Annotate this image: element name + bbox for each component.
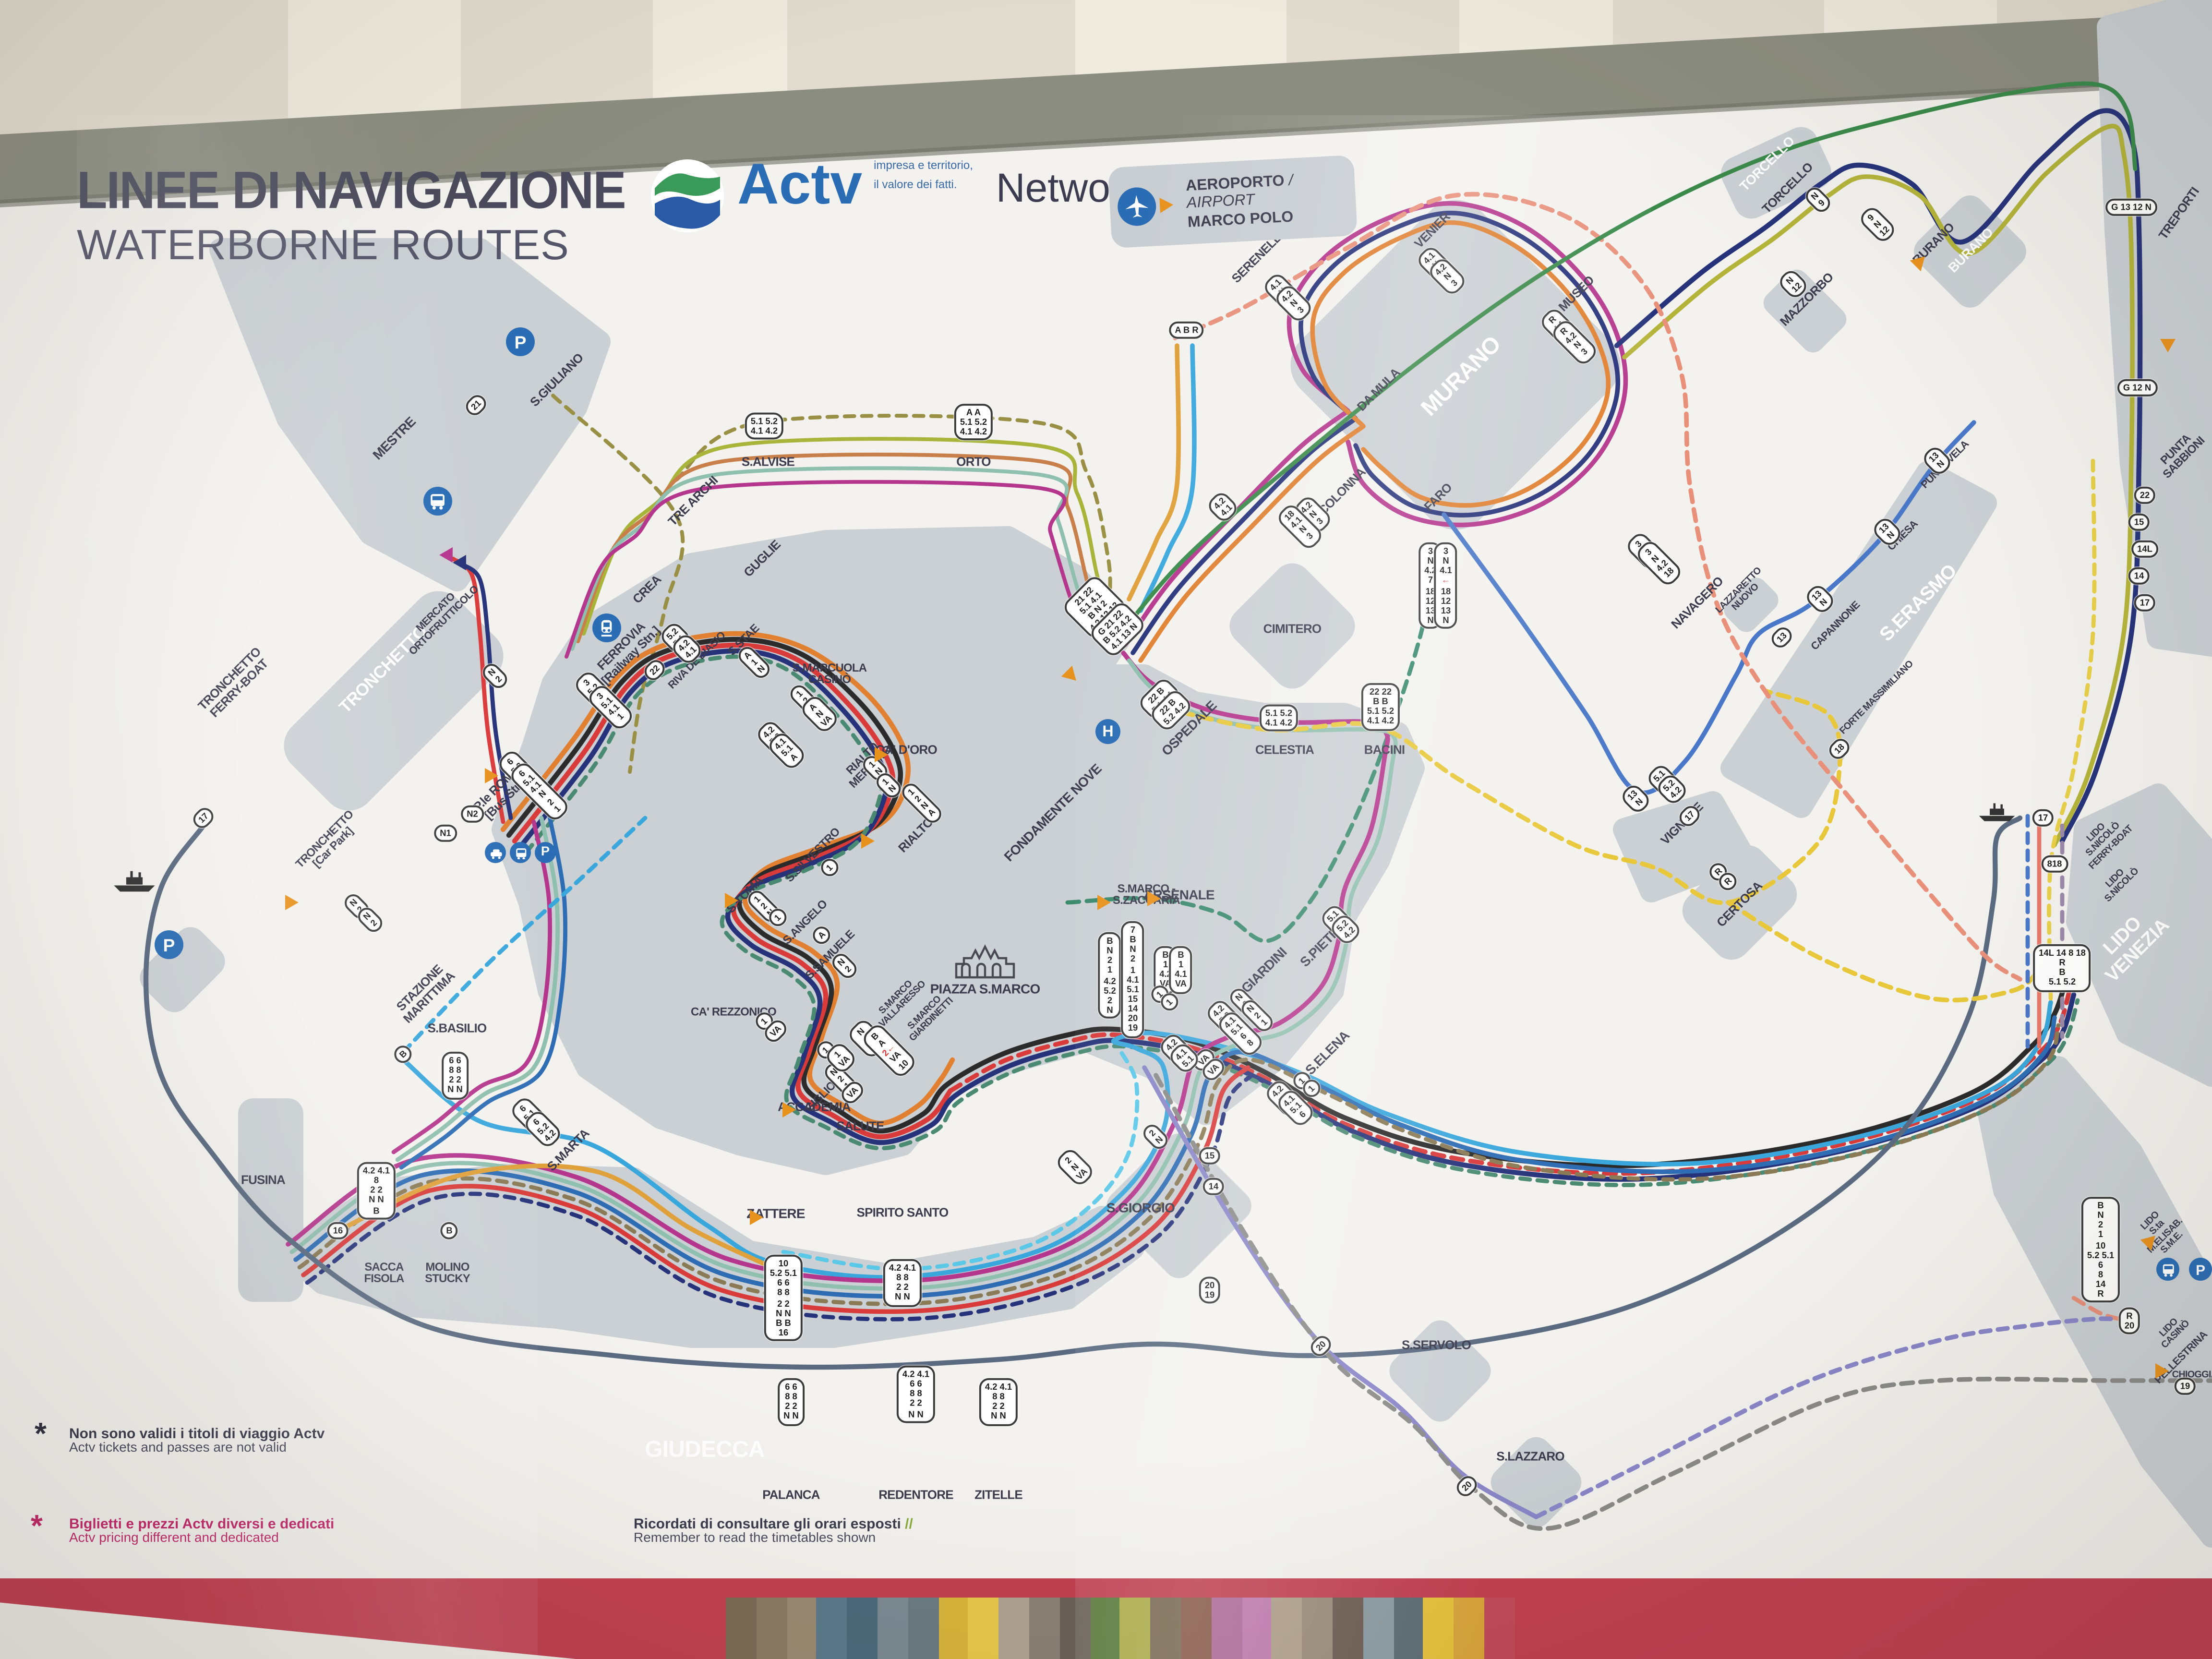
route-number-pill: N1: [434, 825, 457, 842]
actv-logo: Actv impresa e territorio, il valore dei…: [649, 157, 1144, 234]
direction-arrow-icon: [285, 895, 299, 910]
station-label: S.LAZZARO: [1496, 1453, 1564, 1466]
route-number-pill: 22 22B B5.1 5.24.1 4.2: [1361, 683, 1400, 730]
asterisk-icon-black: *: [35, 1419, 47, 1452]
airport-label-it: AEROPORTO: [1185, 172, 1285, 195]
train-icon: [592, 613, 621, 642]
swatch: [1363, 1598, 1393, 1659]
direction-arrow-icon: [725, 893, 738, 908]
note2-english: Actv pricing different and dedicated: [69, 1533, 334, 1550]
route-number-pill: 14: [2128, 567, 2150, 585]
route-number-pill: 15: [2128, 514, 2150, 531]
direction-arrow-icon: [1097, 895, 1111, 910]
taxi-icon: [485, 842, 506, 863]
station-label: CELESTIA: [1255, 746, 1314, 759]
station-label: PIAZZA S.MARCO: [930, 984, 1040, 998]
swatch: [1029, 1598, 1059, 1659]
station-label: PALANCA: [762, 1491, 820, 1504]
route-number-pill: 4.2 4.16 68 82 2N N: [897, 1366, 935, 1423]
note2-italian: Biglietti e prezzi Actv diversi e dedica…: [69, 1515, 334, 1533]
direction-arrow-icon: [875, 747, 888, 762]
station-label: SACCA FISOLA: [364, 1263, 404, 1287]
swatch: [786, 1598, 817, 1659]
swatch: [817, 1598, 847, 1659]
swatch: [1302, 1598, 1333, 1659]
route-number-pill: 5.1 5.24.1 4.2: [1260, 704, 1298, 732]
actv-brand-text: Actv: [737, 157, 862, 215]
route-number-pill: 19: [2175, 1378, 2196, 1395]
route-number-pill: BN21105.2 5.16814R: [2081, 1197, 2120, 1303]
direction-arrow-icon: [1147, 891, 1161, 906]
swatch: [938, 1598, 968, 1659]
P-icon: P: [506, 327, 535, 356]
direction-arrow-icon: [750, 1210, 763, 1225]
airport-arrow-icon: [1159, 197, 1181, 213]
route-number-pill: 818: [2042, 855, 2068, 873]
photo-of-actv-route-map: MESTRES.GIULIANOTRONCHETTOTRONCHETTO FER…: [0, 0, 2212, 1659]
swatch: [1120, 1598, 1150, 1659]
route-number-pill: 22: [2134, 487, 2156, 505]
route-number-pill: 3N4.1←181213N: [1434, 542, 1458, 629]
swatch: [1484, 1598, 1515, 1659]
route-number-pill: 14L: [2131, 541, 2158, 558]
route-number-pill: 5.1 5.24.1 4.2: [745, 412, 783, 440]
route-number-pill: A A5.1 5.24.1 4.2: [954, 404, 993, 441]
station-label: GIUDECCA: [645, 1438, 765, 1462]
P-icon: P: [2189, 1258, 2212, 1281]
legend-note-1-text: Non sono validi i titoli di viaggio Actv…: [69, 1425, 325, 1460]
note3-english: Remember to read the timetables shown: [634, 1533, 913, 1550]
note3-slashes-icon: //: [905, 1515, 913, 1532]
direction-arrow-icon: [485, 768, 498, 783]
ferry-icon: [1975, 799, 2019, 826]
direction-arrow-icon: [861, 833, 875, 849]
note1-italian: Non sono validi i titoli di viaggio Actv: [69, 1425, 325, 1443]
title-english: WATERBORNE ROUTES: [77, 221, 625, 271]
route-number-pill: 4.2 4.18 82 2N N: [883, 1259, 922, 1306]
route-number-pill: B14.1VA: [1169, 946, 1193, 993]
H-icon: H: [1095, 719, 1120, 744]
asterisk-icon-pink: *: [31, 1511, 43, 1544]
legend-note-1: *: [35, 1417, 47, 1455]
legend-note-2-text: Biglietti e prezzi Actv diversi e dedica…: [69, 1515, 334, 1550]
route-number-pill: N2: [461, 805, 484, 823]
direction-arrow-icon: [782, 1102, 796, 1118]
route-number-pill: 17: [2134, 594, 2156, 612]
route-number-pill: 4.2 4.182 2N NB: [357, 1162, 396, 1219]
swatch: [1090, 1598, 1120, 1659]
route-number-pill: 16: [327, 1222, 349, 1240]
route-number-pill: G 13 12 N: [2105, 199, 2157, 216]
swatch: [1181, 1598, 1211, 1659]
legend-note-3-text: Ricordati di consultare gli orari espost…: [634, 1515, 913, 1550]
bus-icon: [423, 487, 452, 516]
station-label: SPIRITO SANTO: [857, 1209, 949, 1222]
route-number-pill: BN214.25.22N: [1098, 932, 1122, 1019]
route-number-pill: 7BN214.15.115142019: [1121, 921, 1145, 1037]
route-number-pill: 17: [2032, 809, 2054, 827]
station-label: REDENTORE: [878, 1491, 953, 1504]
station-label: FUSINA: [241, 1176, 285, 1189]
bus-icon: [2156, 1258, 2179, 1281]
swatch: [1059, 1598, 1090, 1659]
P-icon: P: [155, 930, 183, 959]
bus-icon: [510, 842, 531, 863]
station-label: S.MARCUOLA CASINÒ: [793, 664, 867, 688]
color-swatch-strip: [726, 1598, 1515, 1659]
swatch: [969, 1598, 999, 1659]
route-number-pill: G 12 N: [2117, 379, 2157, 397]
plane-icon: [1117, 186, 1157, 227]
route-number-pill: 4.2 4.18 82 2N N: [979, 1378, 1018, 1425]
swatch: [878, 1598, 908, 1659]
airport-label: AEROPORTO / AIRPORT MARCO POLO: [1185, 169, 1349, 230]
swatch: [1272, 1598, 1302, 1659]
swatch: [1211, 1598, 1241, 1659]
swatch: [726, 1598, 756, 1659]
P-icon: P: [535, 842, 556, 863]
station-label: S.GIORGIO: [1106, 1202, 1175, 1216]
direction-arrow-icon: [2160, 339, 2176, 352]
station-label: S.SERVOLO: [1402, 1341, 1471, 1354]
route-number-pill: 6 68 82 2N N: [778, 1378, 805, 1425]
swatch: [756, 1598, 786, 1659]
swatch: [1333, 1598, 1363, 1659]
actv-logo-icon: [649, 157, 726, 234]
swatch: [1393, 1598, 1423, 1659]
airport-banner: AEROPORTO / AIRPORT MARCO POLO: [1108, 155, 1358, 249]
route-number-pill: 15: [1199, 1147, 1221, 1165]
swatch: [999, 1598, 1029, 1659]
station-label: ZITELLE: [974, 1491, 1022, 1504]
actv-tagline-1: impresa e territorio,: [874, 161, 973, 176]
title-italian: LINEE DI NAVIGAZIONE: [77, 160, 625, 222]
swatch: [1454, 1598, 1484, 1659]
actv-tagline-2: il valore dei fatti.: [874, 180, 973, 194]
swatch: [908, 1598, 938, 1659]
route-number-pill: A B R: [1169, 322, 1204, 339]
route-number-pill: 2019: [1199, 1276, 1221, 1304]
station-label: S.ALVISE: [742, 458, 794, 471]
note1-english: Actv tickets and passes are not valid: [69, 1443, 325, 1460]
swatch: [847, 1598, 878, 1659]
route-number-pill: 105.2 5.16 68 82 2N NB B16: [764, 1255, 803, 1342]
basilica-icon: [952, 941, 1018, 979]
swatch: [1151, 1598, 1181, 1659]
station-label: CIMITERO: [1263, 625, 1322, 638]
ferry-icon: [110, 866, 159, 897]
swatch: [1423, 1598, 1454, 1659]
station-label: ORTO: [956, 458, 990, 471]
station-label: SALUTE: [836, 1122, 884, 1135]
legend-note-2: *: [31, 1509, 43, 1548]
route-number-pill: R20: [2119, 1307, 2140, 1334]
station-label: MOLINO STUCKY: [425, 1263, 470, 1287]
note3-italian: Ricordati di consultare gli orari espost…: [634, 1515, 905, 1532]
map-title: LINEE DI NAVIGAZIONE WATERBORNE ROUTES: [77, 161, 625, 271]
route-number-pill: 6 68 82 2N N: [442, 1052, 469, 1099]
station-label: S.BASILIO: [428, 1024, 487, 1037]
direction-arrow-icon: [2155, 1363, 2169, 1379]
station-label: BACINI: [1364, 746, 1405, 759]
route-number-pill: 14: [1203, 1178, 1225, 1196]
route-number-pill: 14L 14 8 18RB5.1 5.2: [2033, 944, 2092, 991]
swatch: [1241, 1598, 1272, 1659]
